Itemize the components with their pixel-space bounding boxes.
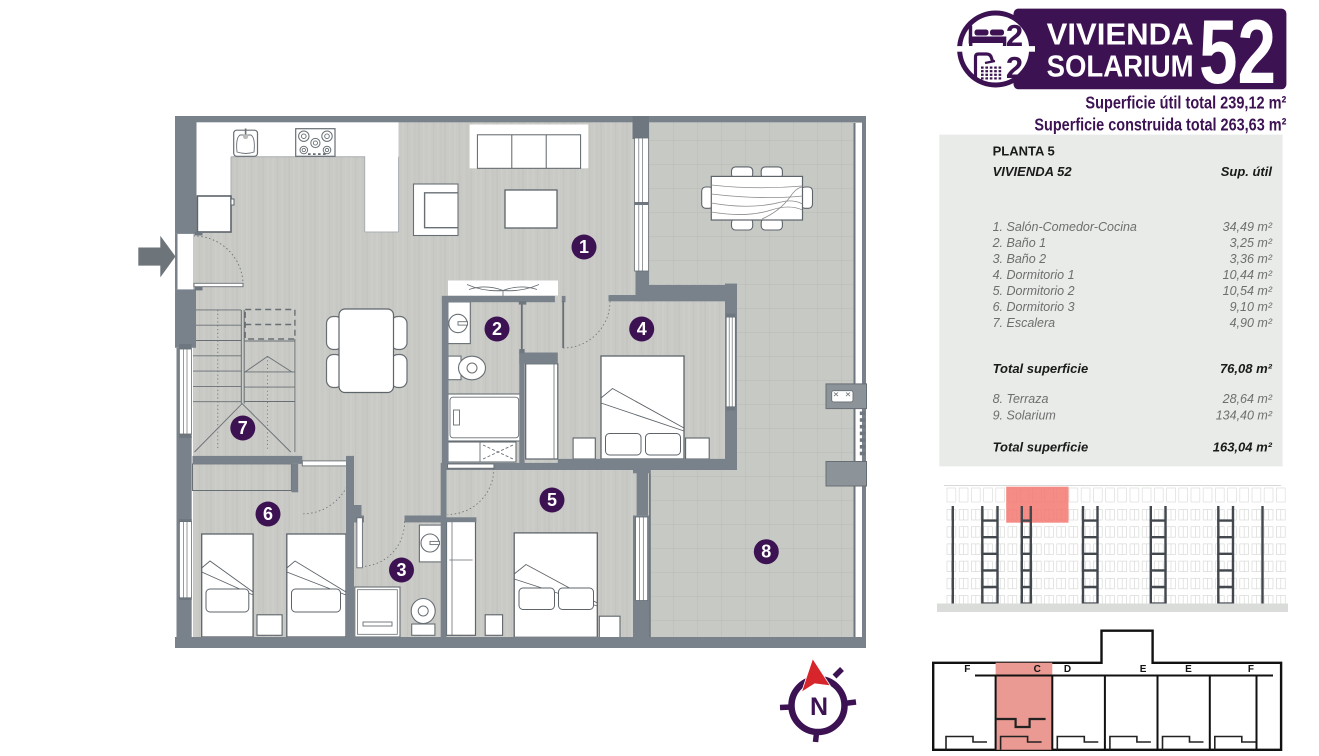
svg-text:163,04 m²: 163,04 m² [1213, 440, 1273, 455]
svg-text:VIVIENDA 52: VIVIENDA 52 [993, 164, 1073, 179]
svg-text:9,10 m²: 9,10 m² [1230, 300, 1273, 314]
svg-text:8. Terraza: 8. Terraza [993, 392, 1049, 406]
svg-text:E: E [1140, 664, 1147, 675]
svg-text:10,44 m²: 10,44 m² [1223, 268, 1273, 282]
svg-text:N: N [810, 693, 828, 721]
svg-text:Total superficie: Total superficie [993, 361, 1089, 376]
svg-text:5. Dormitorio 2: 5. Dormitorio 2 [993, 284, 1075, 298]
svg-text:76,08 m²: 76,08 m² [1220, 361, 1273, 376]
svg-text:52: 52 [1199, 2, 1276, 103]
svg-text:C: C [1034, 664, 1041, 675]
svg-text:F: F [1248, 664, 1254, 675]
svg-text:2: 2 [1006, 18, 1023, 53]
svg-text:3. Baño 2: 3. Baño 2 [993, 252, 1047, 266]
svg-text:8: 8 [761, 542, 771, 562]
svg-text:Superficie construida total 26: Superficie construida total 263,63 m² [1034, 115, 1286, 135]
svg-text:28,64 m²: 28,64 m² [1222, 392, 1273, 406]
svg-text:9. Solarium: 9. Solarium [993, 409, 1056, 423]
svg-text:PLANTA 5: PLANTA 5 [993, 144, 1055, 159]
svg-text:Total superficie: Total superficie [993, 440, 1089, 455]
svg-text:F: F [964, 664, 970, 675]
svg-text:3: 3 [396, 560, 406, 580]
svg-text:6: 6 [263, 504, 273, 524]
svg-text:6. Dormitorio 3: 6. Dormitorio 3 [993, 300, 1075, 314]
svg-text:1: 1 [579, 237, 589, 257]
svg-text:7: 7 [238, 418, 248, 438]
svg-text:VIVIENDA: VIVIENDA [1047, 18, 1194, 52]
svg-text:SOLARIUM: SOLARIUM [1047, 50, 1194, 84]
svg-text:4. Dormitorio 1: 4. Dormitorio 1 [993, 268, 1075, 282]
svg-text:5: 5 [547, 490, 557, 510]
svg-text:1. Salón-Comedor-Cocina: 1. Salón-Comedor-Cocina [993, 220, 1137, 234]
svg-text:34,49 m²: 34,49 m² [1223, 220, 1273, 234]
svg-text:134,40 m²: 134,40 m² [1216, 409, 1273, 423]
svg-text:3,25 m²: 3,25 m² [1230, 236, 1273, 250]
svg-text:2. Baño 1: 2. Baño 1 [992, 236, 1047, 250]
svg-text:Sup. útil: Sup. útil [1221, 164, 1273, 179]
svg-text:4,90 m²: 4,90 m² [1230, 316, 1273, 330]
svg-text:7. Escalera: 7. Escalera [993, 316, 1056, 330]
svg-text:Superficie útil total 239,12 m: Superficie útil total 239,12 m² [1085, 93, 1286, 113]
svg-text:4: 4 [637, 319, 647, 339]
svg-text:D: D [1064, 664, 1071, 675]
svg-text:2: 2 [1006, 50, 1023, 85]
svg-text:2: 2 [492, 319, 502, 339]
svg-text:E: E [1185, 664, 1192, 675]
svg-text:3,36 m²: 3,36 m² [1230, 252, 1273, 266]
svg-text:10,54 m²: 10,54 m² [1223, 284, 1273, 298]
